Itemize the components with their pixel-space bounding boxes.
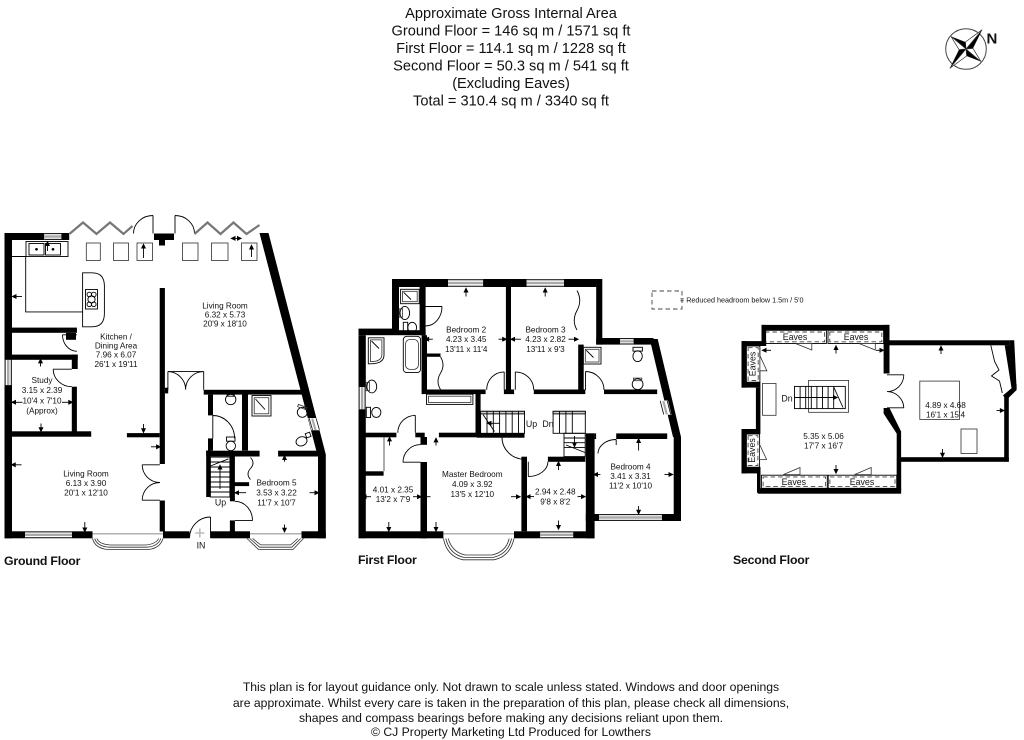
svg-text:shapes and compass bearings be: shapes and compass bearings before makin… [299,711,723,725]
svg-text:(Excluding Eaves): (Excluding Eaves) [452,76,570,92]
svg-text:Dn: Dn [781,394,792,404]
svg-text:Dining Area: Dining Area [95,342,138,351]
svg-text:Eaves: Eaves [783,332,808,342]
svg-text:13'2 x 7'9: 13'2 x 7'9 [376,495,411,504]
svg-text:Eaves: Eaves [850,477,875,487]
svg-text:Bedroom 4: Bedroom 4 [610,462,650,471]
svg-text:Ground Floor = 146 sq m / 1571: Ground Floor = 146 sq m / 1571 sq ft [392,24,631,40]
svg-text:11'2 x 10'10: 11'2 x 10'10 [609,482,652,491]
svg-text:17'7 x 16'7: 17'7 x 16'7 [804,442,844,451]
svg-text:Living Room: Living Room [202,302,248,311]
svg-text:6.32 x 5.73: 6.32 x 5.73 [205,311,246,320]
svg-text:6.13 x 3.90: 6.13 x 3.90 [66,479,107,488]
svg-text:11'7 x 10'7: 11'7 x 10'7 [257,499,296,508]
svg-text:Second Floor = 50.3 sq m / 541: Second Floor = 50.3 sq m / 541 sq ft [393,59,629,75]
svg-text:Living Room: Living Room [63,470,109,479]
svg-text:= Reduced headroom below 1.5m: = Reduced headroom below 1.5m / 5'0 [680,296,803,305]
svg-text:N: N [987,31,998,48]
svg-text:Bedroom 5: Bedroom 5 [256,479,296,488]
svg-text:Second Floor: Second Floor [733,553,810,567]
svg-text:3.15 x 2.39: 3.15 x 2.39 [22,386,63,395]
svg-text:10'4 x 7'10: 10'4 x 7'10 [22,396,62,405]
svg-text:20'1 x 12'10: 20'1 x 12'10 [64,489,108,498]
svg-text:Dn: Dn [542,419,553,429]
svg-text:13'5 x 12'10: 13'5 x 12'10 [450,490,494,499]
svg-text:Bedroom 2: Bedroom 2 [446,326,486,335]
svg-text:Approximate Gross Internal Are: Approximate Gross Internal Area [405,6,618,22]
svg-text:Study: Study [32,376,54,385]
svg-text:Eaves: Eaves [782,477,807,487]
svg-text:Eaves: Eaves [748,351,758,376]
svg-text:13'11 x 9'3: 13'11 x 9'3 [526,345,565,354]
svg-text:Total = 310.4 sq m / 3340 sq f: Total = 310.4 sq m / 3340 sq ft [413,94,609,110]
svg-text:This plan is for layout guidan: This plan is for layout guidance only. N… [243,680,779,694]
svg-text:3.53 x 3.22: 3.53 x 3.22 [256,489,297,498]
svg-text:5.35 x 5.06: 5.35 x 5.06 [803,432,844,441]
svg-text:9'8 x 8'2: 9'8 x 8'2 [540,497,570,506]
svg-text:First Floor: First Floor [358,553,417,567]
svg-text:4.09 x 3.92: 4.09 x 3.92 [452,480,493,489]
svg-text:(Approx): (Approx) [26,407,58,416]
svg-text:16'1 x 15'4: 16'1 x 15'4 [926,411,966,420]
svg-text:Bedroom 3: Bedroom 3 [525,326,565,335]
svg-text:26'1 x 19'11: 26'1 x 19'11 [94,360,137,369]
svg-text:Up: Up [526,419,537,429]
svg-text:First Floor = 114.1 sq m / 122: First Floor = 114.1 sq m / 1228 sq ft [396,41,626,57]
svg-text:4.23 x 2.82: 4.23 x 2.82 [525,335,566,344]
svg-text:Eaves: Eaves [844,332,869,342]
svg-text:20'9 x 18'10: 20'9 x 18'10 [203,320,247,329]
svg-text:4.23 x 3.45: 4.23 x 3.45 [446,335,487,344]
svg-text:4.01 x 2.35: 4.01 x 2.35 [373,485,414,494]
svg-text:Eaves: Eaves [747,438,757,463]
svg-text:Master Bedroom: Master Bedroom [442,470,503,479]
svg-text:Ground Floor: Ground Floor [4,554,81,568]
svg-text:IN: IN [197,541,206,551]
svg-text:4.89 x 4.68: 4.89 x 4.68 [925,401,966,410]
svg-text:Kitchen /: Kitchen / [100,333,133,342]
svg-text:are approximate. Whilst every: are approximate. Whilst every care is ta… [233,696,789,710]
svg-text:2.94 x 2.48: 2.94 x 2.48 [535,488,576,497]
svg-text:Up: Up [215,498,226,508]
svg-text:© CJ Property Marketing Ltd Pr: © CJ Property Marketing Ltd Produced for… [371,725,651,739]
svg-text:3.41 x 3.31: 3.41 x 3.31 [610,472,651,481]
svg-text:7.96 x 6.07: 7.96 x 6.07 [96,351,137,360]
svg-text:13'11 x 11'4: 13'11 x 11'4 [445,345,488,354]
